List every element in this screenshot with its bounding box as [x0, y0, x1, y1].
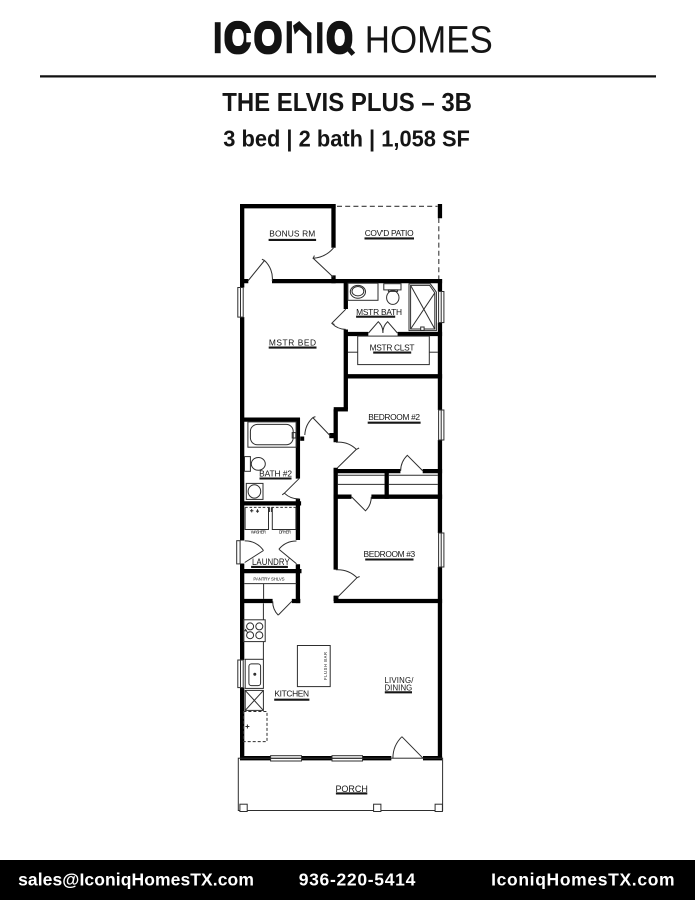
svg-text:BATH #2: BATH #2 [259, 468, 292, 478]
svg-text:KITCHEN: KITCHEN [274, 689, 309, 699]
svg-text:DRYER: DRYER [279, 530, 291, 535]
svg-text:936-220-5414: 936-220-5414 [299, 870, 416, 890]
svg-text:WASHER: WASHER [251, 530, 266, 535]
svg-text:MSTR BED: MSTR BED [269, 338, 316, 348]
svg-text:LAUNDRY: LAUNDRY [252, 557, 290, 567]
svg-text:COV'D PATIO: COV'D PATIO [365, 228, 414, 238]
svg-text:PANTRY SHLVS: PANTRY SHLVS [253, 577, 284, 582]
svg-text:3 bed | 2 bath | 1,058 SF: 3 bed | 2 bath | 1,058 SF [223, 125, 470, 151]
svg-text:THE ELVIS PLUS – 3B: THE ELVIS PLUS – 3B [222, 87, 472, 117]
svg-text:BEDROOM #3: BEDROOM #3 [364, 549, 416, 559]
svg-text:IconiqHomesTX.com: IconiqHomesTX.com [491, 870, 674, 890]
svg-text:BONUS RM: BONUS RM [269, 229, 315, 239]
svg-text:sales@IconiqHomesTX.com: sales@IconiqHomesTX.com [18, 870, 254, 890]
svg-text:BEDROOM #2: BEDROOM #2 [368, 412, 420, 422]
svg-text:PORCH: PORCH [335, 784, 368, 794]
svg-text:FLUSH BAR: FLUSH BAR [323, 652, 328, 680]
svg-text:MSTR CLST: MSTR CLST [370, 343, 415, 353]
svg-text:HOMES: HOMES [365, 19, 493, 61]
